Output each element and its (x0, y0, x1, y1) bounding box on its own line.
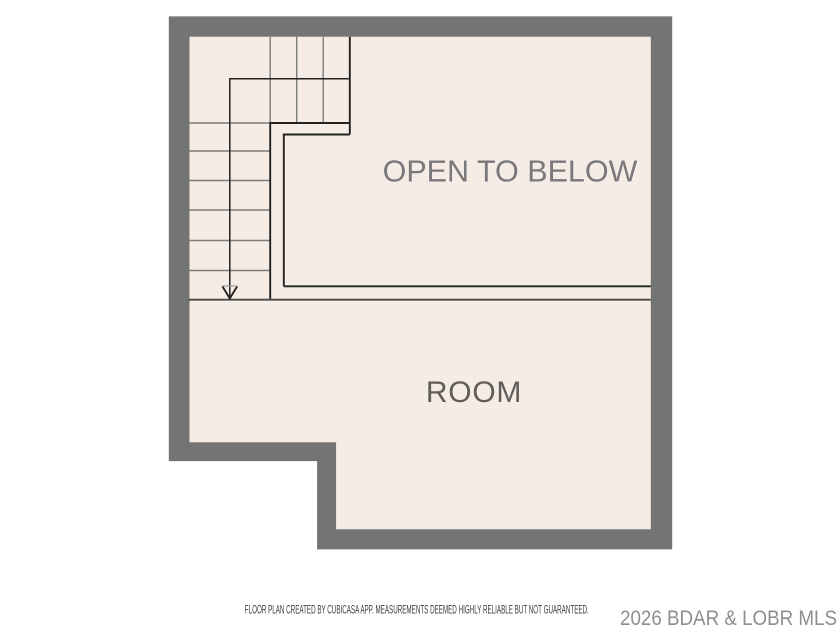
svg-text:OPEN TO BELOW: OPEN TO BELOW (383, 155, 638, 189)
svg-text:2026 BDAR & LOBR MLS: 2026 BDAR & LOBR MLS (620, 607, 837, 630)
svg-text:ROOM: ROOM (426, 376, 522, 409)
svg-text:FLOOR PLAN CREATED BY CUBICASA: FLOOR PLAN CREATED BY CUBICASA APP. MEAS… (245, 603, 589, 617)
